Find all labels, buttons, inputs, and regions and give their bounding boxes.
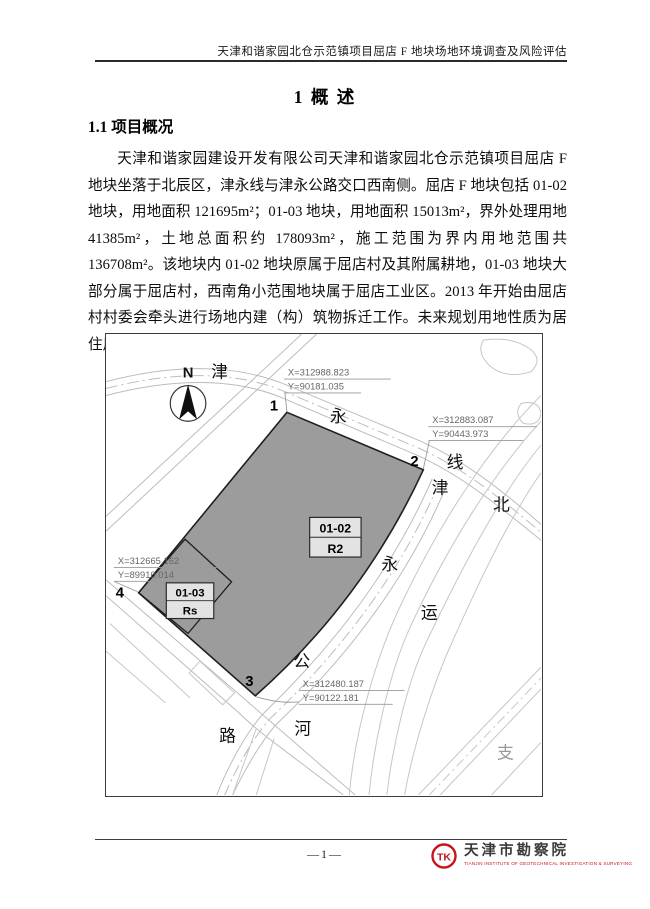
parcel-code: 01-03: [176, 588, 205, 600]
section-heading: 1.1 项目概况: [88, 115, 173, 137]
road-char: 公: [293, 652, 310, 671]
pond-outline: [518, 403, 541, 425]
logo-caption: TIANJIN INSTITUTE OF GEOTECHNICAL INVEST…: [464, 861, 632, 866]
canal-line: [405, 473, 541, 795]
road-char: 永: [330, 407, 347, 426]
road-char: 路: [219, 726, 236, 745]
site-map-figure: N X=312988.823 Y=90181.035 X=312883.087 …: [105, 333, 543, 797]
road-char: 支: [497, 743, 514, 762]
body-paragraph: 天津和谐家园建设开发有限公司天津和谐家园北仓示范镇项目屈店 F 地块坐落于北辰区…: [88, 146, 567, 358]
point-1-x: X=312988.823: [288, 367, 349, 378]
chapter-title: 1 概 述: [0, 84, 650, 109]
field-line: [106, 651, 165, 703]
pond-outline: [481, 339, 537, 374]
branch-road-line: [418, 667, 541, 795]
point-1-callout: X=312988.823 Y=90181.035: [284, 367, 391, 412]
parcel-zone: Rs: [183, 606, 198, 618]
point-1-y: Y=90181.035: [288, 381, 344, 392]
point-2-y: Y=90443.973: [432, 428, 488, 439]
road-char: 河: [294, 720, 311, 739]
site-map: N X=312988.823 Y=90181.035 X=312883.087 …: [106, 334, 541, 795]
point-4-y: Y=89910.014: [118, 569, 174, 580]
parcel-code: 01-02: [320, 521, 352, 535]
road-char: 北: [493, 495, 510, 514]
vertex-2: 2: [410, 454, 418, 470]
logo-name: 天津市勘察院: [464, 842, 632, 860]
point-2-x: X=312883.087: [432, 414, 493, 425]
road-char: 运: [421, 604, 438, 623]
footer-rule: [95, 839, 567, 840]
parcel-label-01-03: 01-03 Rs: [166, 583, 213, 619]
logo-monogram: TK: [437, 852, 451, 864]
branch-road-centerline: [429, 678, 541, 795]
north-arrow-icon: N: [170, 366, 206, 422]
vertex-4: 4: [116, 586, 125, 602]
road-char: 永: [381, 555, 398, 574]
point-3-x: X=312480.187: [303, 678, 364, 689]
branch-road-line: [440, 689, 541, 795]
header-running-title: 天津和谐家园北仓示范镇项目屈店 F 地块场地环境调查及风险评估: [95, 43, 567, 59]
point-3-y: Y=90122.181: [303, 692, 359, 703]
road-char: 线: [447, 453, 464, 472]
point-2-callout: X=312883.087 Y=90443.973: [423, 414, 537, 469]
header-rule: [95, 60, 567, 62]
institute-logo: TK 天津市勘察院 TIANJIN INSTITUTE OF GEOTECHNI…: [429, 842, 632, 872]
road-char: 津: [211, 363, 228, 382]
vertex-3: 3: [245, 674, 253, 690]
parcel-zone: R2: [327, 542, 343, 556]
road-char: 津: [432, 479, 449, 498]
north-label: N: [183, 366, 194, 382]
vertex-1: 1: [270, 398, 278, 414]
document-page: 天津和谐家园北仓示范镇项目屈店 F 地块场地环境调查及风险评估 1 概 述 1.…: [0, 0, 650, 909]
parcel-label-01-02: 01-02 R2: [310, 517, 361, 557]
point-4-x: X=312665.162: [118, 555, 179, 566]
point-3-callout: X=312480.187 Y=90122.181: [256, 678, 404, 704]
compass-needle: [179, 385, 197, 420]
logo-badge-icon: TK: [429, 842, 459, 872]
